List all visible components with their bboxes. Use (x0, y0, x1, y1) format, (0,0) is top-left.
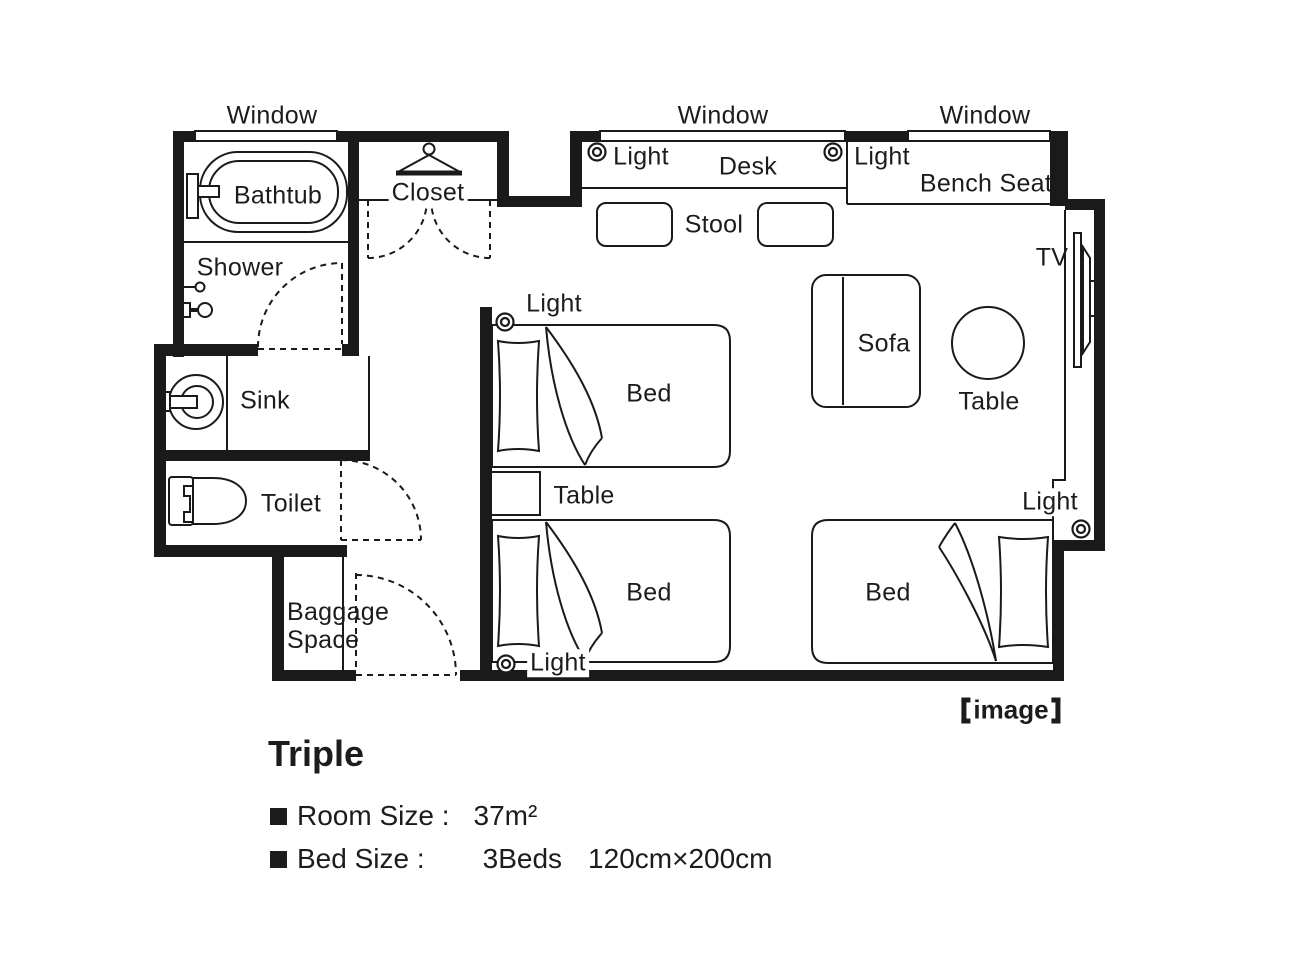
shower-label: Shower (197, 254, 284, 282)
toilet-icon (169, 477, 246, 525)
closet-door-right-arc (431, 200, 490, 258)
light-bed-bottom-label: Light (527, 649, 589, 677)
image-caption: image (961, 695, 1060, 726)
light-icon-desk-right (825, 144, 842, 161)
sofa-label: Sofa (858, 330, 911, 358)
tv-icon (1074, 233, 1094, 367)
nightstand-table-label: Table (553, 482, 614, 510)
baggage-space-label: Baggage Space (287, 599, 389, 654)
bed-count-value: 3Beds (483, 843, 562, 875)
tv-label: TV (1036, 244, 1069, 272)
bench-seat-label: Bench Seat (920, 170, 1052, 198)
stool-label: Stool (685, 211, 743, 239)
shower-fixture-icon (183, 283, 212, 318)
window-left-opening (195, 131, 337, 141)
bed-top-label: Bed (626, 380, 671, 408)
window-right-label: Window (940, 102, 1031, 130)
floor-plan-page: Window Window Window Light Desk Light Be… (0, 0, 1300, 975)
hanger-icon (396, 144, 462, 174)
window-middle-opening (600, 131, 845, 141)
room-size-row: Room Size : 37m² (270, 800, 537, 832)
round-table-icon (952, 307, 1024, 379)
bathtub-label: Bathtub (234, 182, 322, 210)
closet-door-left-arc (368, 200, 427, 258)
closet-label: Closet (389, 179, 468, 207)
bed-size-row: Bed Size : 3Beds 120cm×200cm (270, 843, 772, 875)
toilet-label: Toilet (261, 490, 321, 518)
bullet-square-icon (270, 808, 287, 825)
bed-size-label: Bed Size : (297, 843, 425, 875)
nightstand-icon (488, 472, 540, 515)
light-icon-bed-bottom (498, 656, 515, 673)
bed-right-label: Bed (865, 579, 910, 607)
stool-right-icon (758, 203, 833, 246)
bed-right-icon (812, 520, 1053, 663)
light-desk-left-label: Light (613, 143, 669, 171)
room-size-value: 37m² (474, 800, 538, 832)
bed-top-icon (492, 325, 730, 467)
right-lenticular-bracket (1052, 697, 1061, 723)
toilet-door-arc (341, 460, 421, 540)
room-type-title: Triple (268, 733, 364, 775)
light-icon-desk-left (589, 144, 606, 161)
light-wall-label: Light (1019, 488, 1081, 516)
bed-bottom-icon (492, 520, 730, 662)
desk-label: Desk (719, 153, 777, 181)
window-right-opening (908, 131, 1050, 141)
bed-dimensions-value: 120cm×200cm (588, 843, 772, 875)
stool-left-icon (597, 203, 672, 246)
bed-bottom-label: Bed (626, 579, 671, 607)
sink-icon (156, 375, 223, 429)
round-table-label: Table (958, 388, 1019, 416)
bullet-square-icon (270, 851, 287, 868)
sink-label: Sink (240, 387, 290, 415)
light-desk-right-label: Light (854, 143, 910, 171)
window-middle-label: Window (678, 102, 769, 130)
light-bed-top-label: Light (526, 290, 582, 318)
left-lenticular-bracket (961, 697, 970, 723)
room-size-label: Room Size : (297, 800, 450, 832)
light-icon-bed-top (497, 314, 514, 331)
caption-text: image (973, 695, 1048, 726)
light-icon-wall (1073, 521, 1090, 538)
window-left-label: Window (227, 102, 318, 130)
